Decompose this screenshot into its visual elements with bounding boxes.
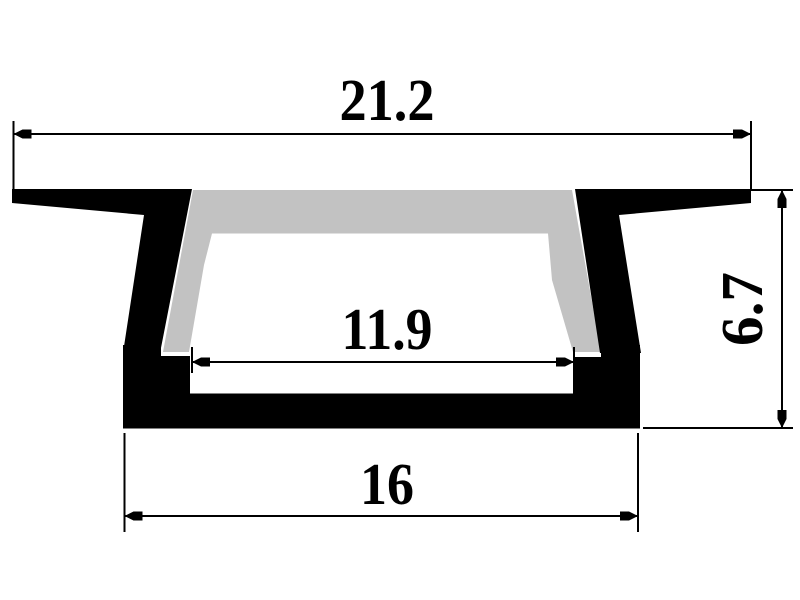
svg-text:21.2: 21.2 bbox=[340, 67, 435, 133]
svg-text:16: 16 bbox=[360, 451, 414, 517]
svg-text:6.7: 6.7 bbox=[709, 272, 775, 346]
svg-text:11.9: 11.9 bbox=[342, 296, 433, 362]
